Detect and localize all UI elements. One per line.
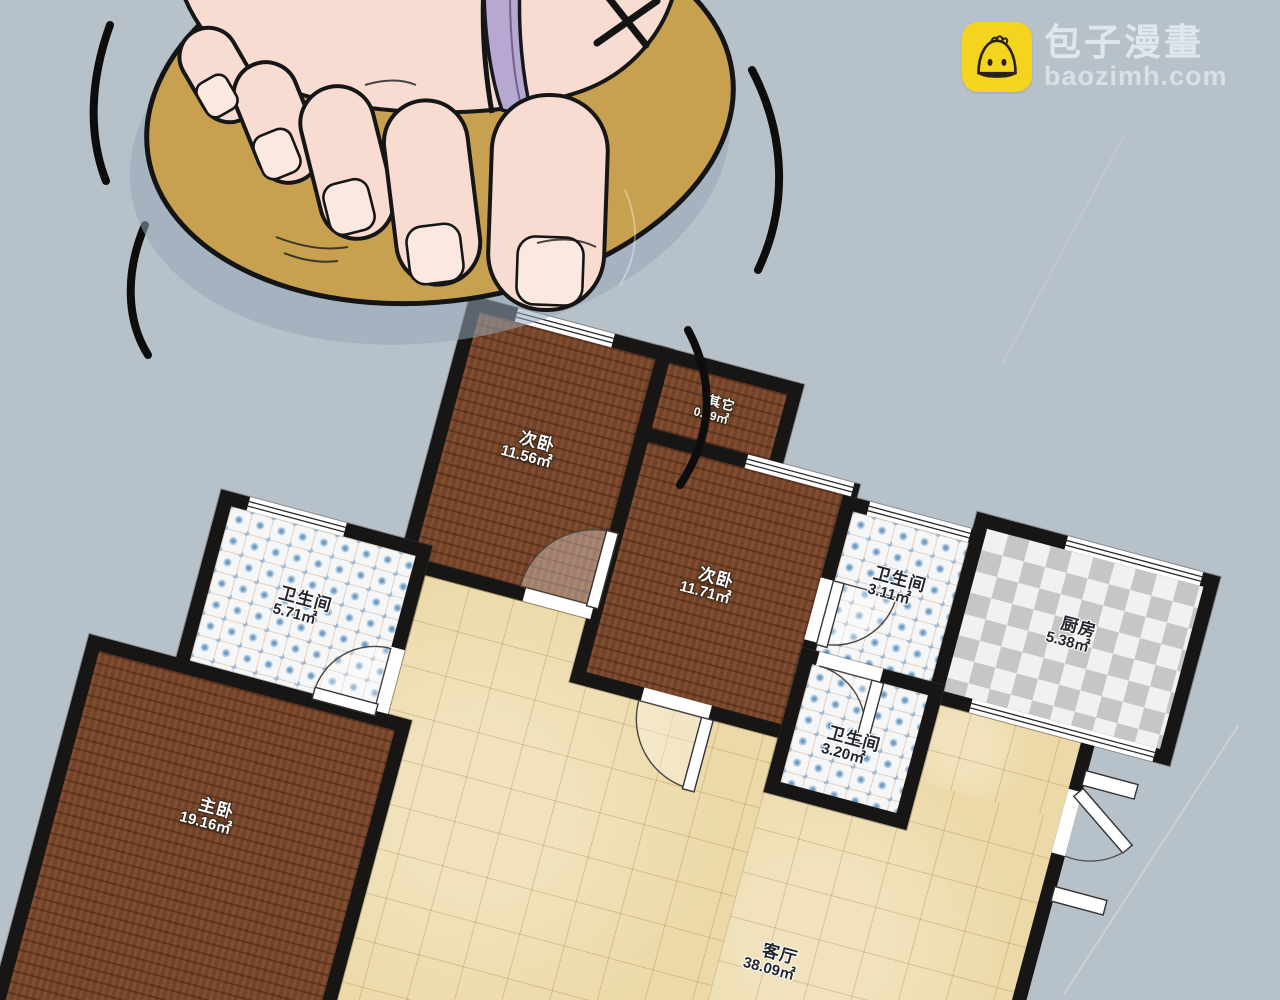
site-watermark: 包子漫畫 baozimh.com xyxy=(962,22,1228,92)
background-streak xyxy=(1001,135,1125,366)
door-entry xyxy=(1039,768,1147,918)
logo-text: 包子漫畫 baozimh.com xyxy=(1044,22,1228,92)
door-bedroom1 xyxy=(517,513,619,621)
door-bedroom2 xyxy=(620,687,717,792)
stomping-foot-illustration xyxy=(40,0,820,495)
baozi-bun-icon xyxy=(962,22,1032,92)
comic-panel: 次卧 11.56㎡ 其它 0.59㎡ 次卧 11.71㎡ 卫生间 3.11㎡ 厨… xyxy=(0,0,1280,1000)
window-bathroom2 xyxy=(247,497,347,536)
window-bathroom1 xyxy=(867,502,972,543)
sliding-door-kitchen xyxy=(969,699,1156,762)
window-kitchen xyxy=(1064,536,1203,586)
site-url: baozimh.com xyxy=(1044,61,1228,92)
site-name: 包子漫畫 xyxy=(1044,24,1228,61)
door-bathroom2 xyxy=(312,630,405,719)
